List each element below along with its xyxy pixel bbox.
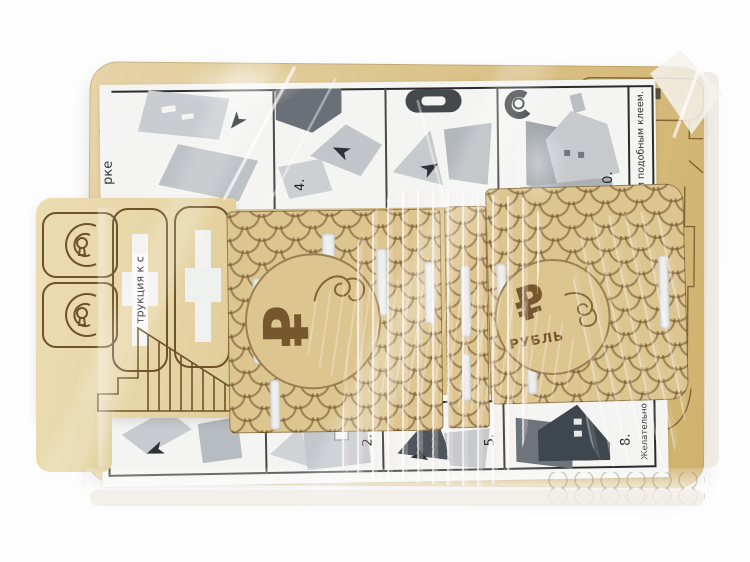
- printed-part: [158, 143, 259, 202]
- slot-cutout: [658, 255, 670, 329]
- arrow-icon: [226, 111, 247, 132]
- step-label-partial: 0.: [601, 171, 616, 184]
- panel-divider: [272, 89, 275, 209]
- slot-cutout: [462, 353, 472, 401]
- table-border-top: [111, 85, 651, 93]
- slot-cutout: [270, 380, 281, 430]
- ruble-medallion-right: ₽ РУБЛЬ: [493, 257, 612, 376]
- table-border-right: [653, 397, 656, 467]
- roof-panel-middle: [444, 206, 490, 429]
- panel-divider: [384, 88, 387, 208]
- flourish-ornament: [545, 281, 617, 339]
- roof-panel-left: ₽: [226, 209, 443, 434]
- bottom-note: Желательно: [639, 403, 650, 460]
- product-photo-scene: рке 4. 0.: [0, 0, 750, 562]
- slot-cutout: [424, 262, 435, 324]
- step-label-2: 2.: [360, 434, 375, 447]
- wrap-edge-bottom: [90, 490, 704, 506]
- slot-cutout: [460, 265, 471, 337]
- roof-panel-right: ₽ РУБЛЬ: [485, 183, 689, 404]
- capsule-icon: [405, 89, 461, 113]
- panel-divider: [502, 400, 505, 470]
- keyhole-icon: [79, 248, 85, 255]
- sheet-title-fragment: рке: [101, 161, 116, 185]
- step-label-4: 4.: [293, 179, 308, 192]
- printed-part-dark: [275, 88, 341, 133]
- house-render-dark: [515, 402, 616, 468]
- step-label-5: 5.: [482, 434, 497, 447]
- glue-note: им подобным клеем.: [635, 91, 647, 195]
- printed-part: [444, 123, 493, 185]
- step-label-8: 8.: [618, 433, 633, 446]
- ruble-medallion-left: ₽: [244, 252, 382, 390]
